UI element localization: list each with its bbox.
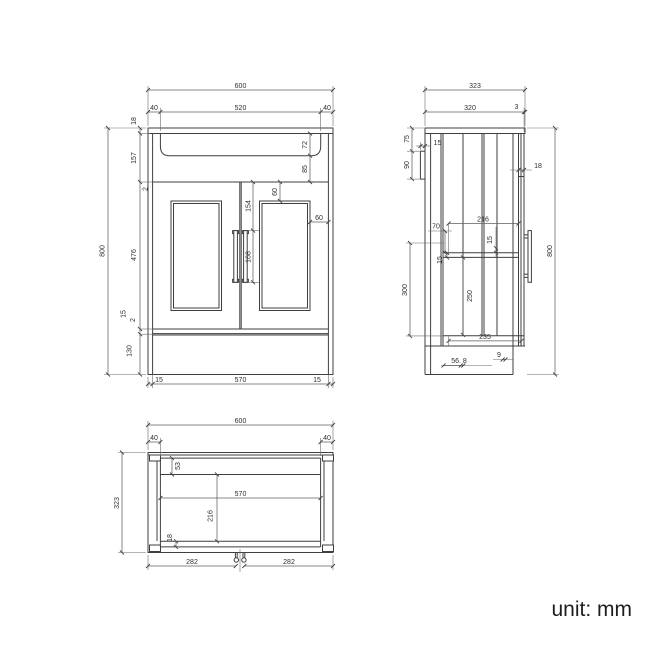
dim-front-basin-width: 520	[235, 105, 247, 112]
dim-side-bracket-height: 90	[404, 161, 411, 169]
dim-plan-front-strip: 18	[167, 534, 174, 542]
dim-front-top-thickness: 18	[131, 117, 138, 125]
dim-side-interior-height: 250	[467, 290, 474, 302]
dim-front-handle-top-offset: 154	[246, 200, 253, 212]
dim-front-basin-offset-left: 40	[150, 105, 158, 112]
left-door-handle	[233, 231, 239, 283]
dim-front-panel-top-inset: 60	[272, 188, 279, 196]
dim-front-basin-to-door: 85	[302, 165, 309, 173]
basin-outline	[160, 134, 320, 156]
dim-side-shelf-depth: 235	[479, 334, 491, 341]
dim-plan-overall-depth: 323	[114, 497, 121, 509]
dim-front-basin-offset-right: 40	[323, 105, 331, 112]
left-door-panel	[171, 201, 222, 311]
corner-post-bottom-right	[323, 545, 334, 552]
dim-side-offset-nine: 9	[497, 352, 501, 359]
dim-side-offset-56-8: 56. 8	[451, 358, 467, 365]
dim-plan-interior-width: 570	[235, 491, 247, 498]
dim-front-basin-depth: 72	[302, 141, 309, 149]
dim-side-compartment-height: 300	[402, 284, 409, 296]
dim-side-rail-thickness: 15	[437, 256, 444, 264]
side-countertop	[425, 128, 525, 134]
dim-side-counter-depth: 320	[464, 105, 476, 112]
dim-plan-interior-depth: 216	[208, 510, 215, 522]
dim-front-handle-length: 168	[246, 251, 253, 263]
dim-plan-corner-right: 40	[323, 435, 331, 442]
dim-front-base-width: 570	[235, 377, 247, 384]
dim-plan-overall-width: 600	[235, 418, 247, 425]
dim-front-base-inset-left: 15	[155, 377, 163, 384]
corner-post-top-right	[323, 455, 334, 461]
dim-side-shelf-offset: 70	[432, 224, 440, 231]
dim-plan-fixing-left: 282	[186, 559, 198, 566]
dim-side-back-lip: 3	[515, 104, 519, 111]
dim-front-gap-top: 2	[143, 187, 150, 191]
dim-plan-corner-left: 40	[150, 435, 158, 442]
unit-label: unit: mm	[551, 598, 632, 622]
side-view-geometry	[420, 128, 531, 375]
dim-side-overall-depth: 323	[469, 83, 481, 90]
front-view-geometry	[148, 128, 333, 375]
dim-side-gap-inner: 15	[487, 236, 494, 244]
dim-front-base-inset-right: 15	[313, 377, 321, 384]
dim-side-bracket-top-offset: 75	[404, 135, 411, 143]
dim-plan-fixing-right: 282	[283, 559, 295, 566]
technical-drawing-canvas: 600 40 520 40 18 157 2 476 15 2 130 800 …	[0, 0, 650, 650]
corner-post-top-left	[150, 455, 161, 461]
side-handle	[524, 231, 531, 283]
dim-front-panel-side-inset: 60	[315, 215, 323, 222]
dim-side-interior-depth: 216	[477, 217, 489, 224]
dim-plan-back-strip: 53	[175, 462, 182, 470]
dim-front-overall-width: 600	[235, 83, 247, 90]
dim-side-bracket-width: 15	[434, 140, 442, 147]
plan-view-labels: 600 40 40 323 53 570 216 18 282 282	[114, 418, 331, 566]
corner-post-bottom-left	[150, 545, 161, 552]
dim-side-front-rail: 18	[534, 163, 542, 170]
dim-front-gap-bottom: 2	[130, 318, 137, 322]
dim-side-overall-height: 800	[547, 245, 554, 257]
dim-front-door-height: 476	[131, 249, 138, 261]
right-door-panel	[260, 201, 311, 311]
wall-bracket	[420, 151, 425, 179]
dim-front-overall-height: 800	[100, 245, 107, 257]
dim-front-bottom-rail: 15	[121, 310, 128, 318]
dim-front-plinth-height: 130	[127, 345, 134, 357]
dim-front-counter-section: 157	[131, 152, 138, 164]
